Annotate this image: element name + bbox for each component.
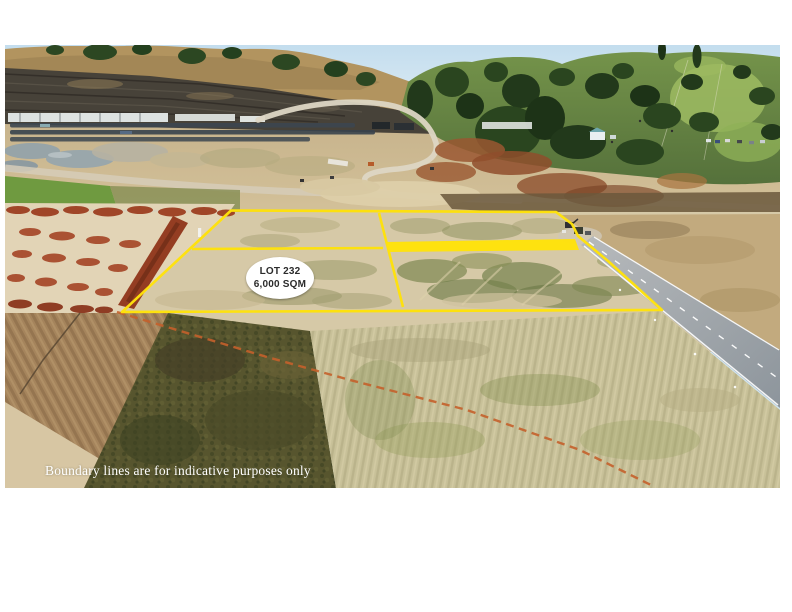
disclaimer-text: Boundary lines are for indicative purpos…	[45, 463, 311, 479]
listing-image-page: LOT 232 6,000 SQM Boundary lines are for…	[0, 0, 792, 612]
lot-area: 6,000 SQM	[254, 278, 306, 291]
lot-label: LOT 232 6,000 SQM	[246, 257, 314, 299]
aerial-photo	[5, 45, 780, 488]
aerial-photo-scene	[5, 45, 780, 488]
white-marker-post	[198, 228, 201, 237]
lot-number: LOT 232	[260, 265, 301, 278]
lot-divider-horizontal	[192, 248, 383, 249]
